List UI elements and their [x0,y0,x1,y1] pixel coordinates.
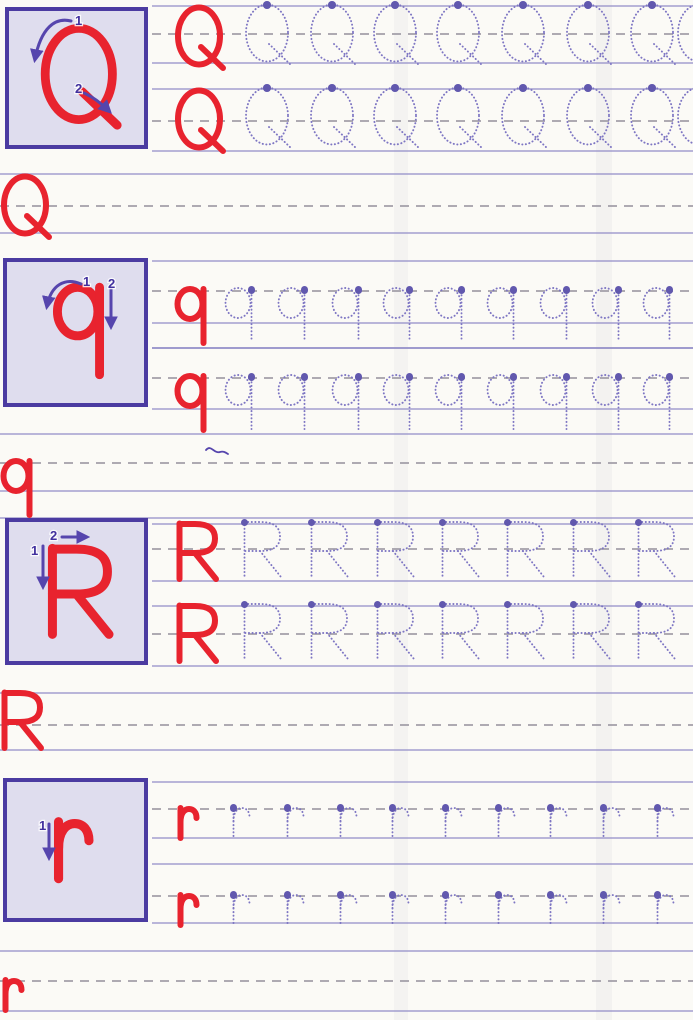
example-letter-R [176,522,218,580]
rule-base-line [0,1010,693,1012]
start-dot [442,804,450,812]
stray-pen-mark [203,441,231,459]
trace-letter-q [277,286,311,344]
stroke-order-arrows-Q: 12 [5,7,148,149]
rule-mid-dashed-line [0,205,693,207]
start-dot [284,891,292,899]
start-dot [458,286,466,294]
trace-letter-Q [676,86,693,150]
start-dot [230,804,238,812]
trace-letter-R [439,520,481,578]
trace-letter-Q [309,86,359,150]
scan-streak [394,0,408,1020]
rule-top-line [0,950,693,952]
trace-letter-Q [565,3,615,67]
start-dot [666,286,674,294]
rule-mid-dashed-line [0,980,693,982]
trace-letter-R [570,602,612,660]
rule-mid-dashed-line [0,724,693,726]
start-dot [615,286,623,294]
start-dot [454,84,462,92]
start-dot [519,84,527,92]
rule-base-line [0,490,693,492]
trace-letter-Q [244,3,294,67]
trace-letter-Q [372,86,422,150]
rule-top-line [0,692,693,694]
start-dot [263,1,271,9]
stroke-order-arrows-q: 12 [3,258,148,407]
start-dot [301,373,309,381]
rule-top-line [152,781,693,783]
trace-letter-q [539,373,573,431]
start-dot [615,373,623,381]
trace-letter-q [486,286,520,344]
trace-letter-R [308,602,350,660]
start-dot [284,804,292,812]
scan-streak [596,0,612,1020]
start-dot [519,1,527,9]
trace-letter-Q [629,86,679,150]
trace-letter-Q [500,86,550,150]
rule-base-line [0,232,693,234]
trace-letter-q [331,373,365,431]
start-dot [495,891,503,899]
start-dot [301,286,309,294]
worksheet-page: 1212121 [0,0,693,1020]
trace-letter-Q [244,86,294,150]
trace-letter-q [382,373,416,431]
trace-letter-R [241,602,283,660]
example-letter-r [176,805,200,839]
trace-letter-Q [676,3,693,67]
start-dot [600,891,608,899]
example-letter-R [176,604,218,662]
start-dot [654,891,662,899]
start-dot [328,84,336,92]
trace-letter-q [642,286,676,344]
trace-letter-R [504,602,546,660]
rule-base-line [152,580,693,582]
start-dot [563,373,571,381]
trace-letter-Q [435,86,485,150]
start-dot [230,891,238,899]
stroke-arrow [47,282,81,306]
trace-letter-q [277,373,311,431]
start-dot [563,286,571,294]
start-dot [389,891,397,899]
start-dot [458,373,466,381]
example-letter-Q [176,89,226,153]
start-dot [248,373,256,381]
trace-letter-Q [629,3,679,67]
start-dot [248,286,256,294]
stroke-number: 1 [39,818,46,833]
start-dot [337,804,345,812]
start-dot [600,804,608,812]
example-letter-q [176,374,210,432]
trace-letter-R [241,520,283,578]
start-dot [355,373,363,381]
trace-letter-q [539,286,573,344]
trace-letter-R [439,602,481,660]
trace-letter-R [308,520,350,578]
example-letter-r [176,892,200,926]
trace-letter-q [224,373,258,431]
stroke-number: 2 [50,528,57,543]
trace-letter-q [591,373,625,431]
start-dot [391,84,399,92]
trace-letter-q [591,286,625,344]
rule-base-line [152,665,693,667]
start-dot [547,804,555,812]
start-dot [355,286,363,294]
trace-letter-q [434,373,468,431]
example-letter-q [2,459,36,517]
start-dot [328,1,336,9]
start-dot [406,373,414,381]
rule-top-line [0,173,693,175]
trace-letter-Q [435,3,485,67]
trace-letter-R [570,520,612,578]
start-dot [442,891,450,899]
rule-top-line [152,260,693,262]
example-letter-Q [176,6,226,70]
stroke-order-arrows-r: 1 [3,778,148,922]
rule-base-line [152,150,693,152]
start-dot [454,1,462,9]
stroke-number: 1 [83,274,90,289]
example-letter-r [1,977,25,1011]
trace-letter-R [504,520,546,578]
stroke-number: 1 [31,543,38,558]
trace-letter-R [635,602,677,660]
stray-pen-mark-path [206,448,228,454]
stroke-order-arrows-R: 12 [5,518,148,665]
start-dot [406,286,414,294]
trace-letter-R [374,520,416,578]
trace-letter-Q [500,3,550,67]
example-letter-Q [2,175,52,239]
start-dot [263,84,271,92]
trace-letter-Q [309,3,359,67]
start-dot [648,1,656,9]
trace-letter-q [382,286,416,344]
start-dot [666,373,674,381]
stroke-number: 2 [108,276,115,291]
rule-top-line [152,863,693,865]
trace-letter-R [635,520,677,578]
start-dot [654,804,662,812]
trace-letter-Q [565,86,615,150]
stroke-number: 1 [75,13,82,28]
rule-base-line [0,749,693,751]
start-dot [389,804,397,812]
rule-top-line [0,433,693,435]
trace-letter-q [434,286,468,344]
example-letter-R [1,691,43,749]
trace-letter-Q [372,3,422,67]
rule-top-line [152,347,693,349]
rule-mid-dashed-line [0,462,693,464]
trace-letter-q [486,373,520,431]
start-dot [584,1,592,9]
start-dot [337,891,345,899]
start-dot [391,1,399,9]
trace-letter-q [331,286,365,344]
stroke-arrow [35,20,71,59]
start-dot [495,804,503,812]
trace-letter-q [642,373,676,431]
example-letter-q [176,287,210,345]
stroke-number: 2 [75,81,82,96]
start-dot [648,84,656,92]
trace-letter-R [374,602,416,660]
start-dot [510,373,518,381]
start-dot [584,84,592,92]
stroke-arrow [84,93,109,111]
start-dot [510,286,518,294]
start-dot [547,891,555,899]
trace-letter-q [224,286,258,344]
